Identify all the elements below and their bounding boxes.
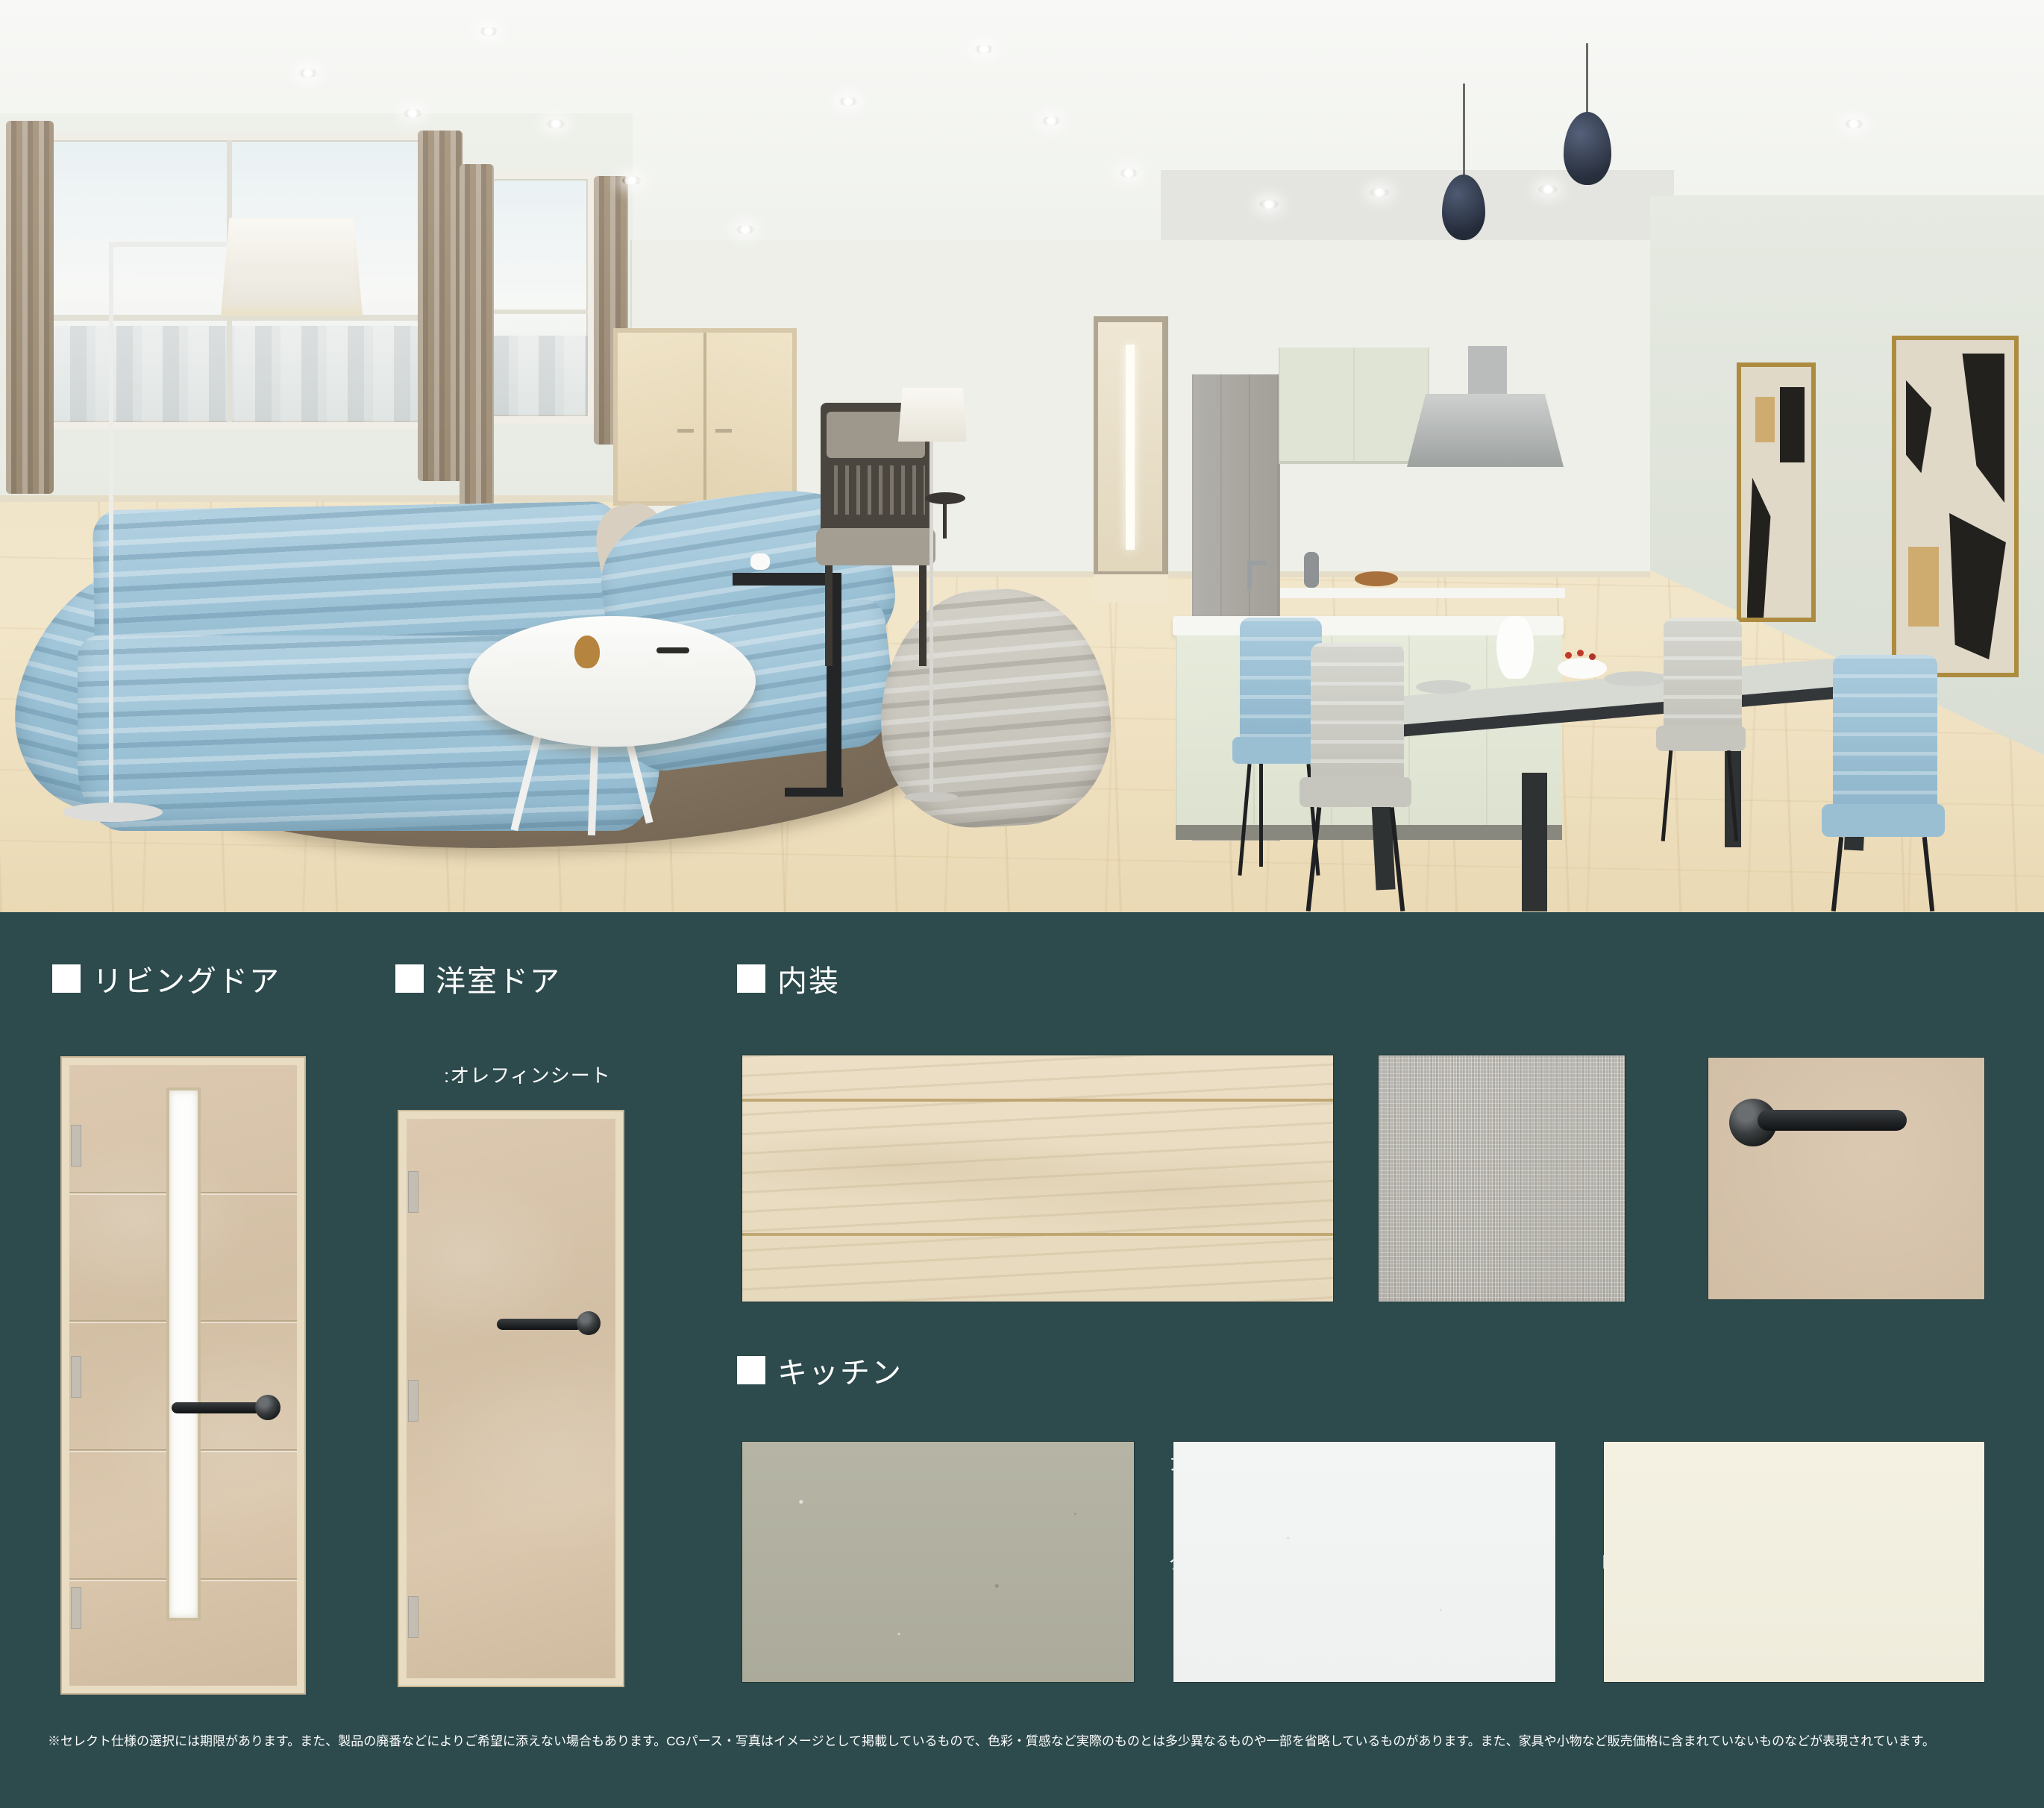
plank-seam: [742, 1099, 1333, 1102]
kitchen-upper-cabinets: [1279, 348, 1429, 464]
door-glass-slit: [166, 1087, 201, 1621]
door-hinge: [408, 1171, 418, 1213]
dining-chair-blue-right: [1822, 655, 1949, 912]
downlight: [1041, 116, 1061, 125]
chair-seat: [1656, 726, 1746, 751]
spec-line: :オレフィンシート: [444, 1059, 611, 1092]
handle-lever: [1758, 1110, 1907, 1131]
dining-chair-gray: [1300, 643, 1419, 912]
door-hinge: [71, 1587, 81, 1629]
downlight: [1119, 169, 1138, 178]
curtain: [6, 121, 54, 494]
downlight: [1370, 188, 1389, 197]
chair-leg: [1831, 837, 1843, 911]
closet-leaf-right: [706, 333, 792, 501]
chair-back: [1833, 655, 1937, 808]
art-shape: [1949, 513, 2006, 659]
closet-leaf-left: [618, 333, 703, 501]
door-lever-handle: [172, 1402, 261, 1413]
side-table-base: [785, 788, 843, 797]
wall-art-left: [1737, 362, 1816, 622]
arc-lamp-shade: [221, 218, 363, 316]
chair-leg: [1922, 837, 1934, 911]
chair-leg: [1259, 764, 1263, 867]
cup: [750, 553, 770, 570]
art-shape: [1908, 547, 1939, 627]
disclaimer-text: ※セレクト仕様の選択には期限があります。また、製品の廃番などによりご希望に添えな…: [48, 1730, 2002, 1749]
berries: [1565, 652, 1572, 659]
countertop-swatch: [1173, 1442, 1555, 1682]
baseboard-left: [0, 495, 633, 502]
art-shape: [1780, 387, 1805, 462]
city-view: [492, 336, 588, 416]
counter-vase: [1304, 552, 1319, 588]
decor-gold-kettle: [574, 635, 600, 668]
flooring-swatch: [742, 1055, 1333, 1302]
living-door-image: [62, 1058, 304, 1693]
downlight: [838, 97, 858, 106]
kitchen-back-counter: [1280, 588, 1565, 598]
art-shape: [1906, 380, 1932, 474]
chair-back: [1664, 618, 1742, 729]
door-lever-handle: [497, 1319, 583, 1330]
window-left-small: [485, 172, 595, 424]
chair-leg: [1238, 764, 1251, 876]
chair-leg: [1727, 750, 1739, 841]
downlight: [1844, 119, 1863, 128]
curtain: [418, 131, 463, 481]
chair-seat: [1300, 777, 1411, 807]
faucet-spout: [1247, 561, 1267, 565]
chair-leg: [1661, 750, 1673, 841]
closet-handle: [677, 429, 694, 433]
door-handle-rose: [255, 1395, 280, 1420]
hallway-door-glass-slit: [1126, 345, 1135, 550]
armchair-seat-cushion: [816, 528, 935, 565]
arc-lamp-base: [63, 803, 163, 822]
square-bullet-icon: [52, 964, 81, 993]
chair-leg: [1306, 807, 1322, 911]
downlight: [403, 109, 422, 118]
art-shape: [1957, 354, 2004, 503]
range-hood: [1407, 394, 1564, 467]
downlight: [546, 119, 565, 128]
door-handle-swatch: [1708, 1058, 1984, 1299]
armchair-leg: [919, 565, 927, 666]
dining-chair-gray-right: [1656, 618, 1753, 841]
window-rail: [492, 310, 588, 314]
closet-gap: [703, 333, 707, 501]
kitchen-panel-swatch: [1604, 1442, 1984, 1682]
door-hinge: [408, 1380, 418, 1422]
downlight: [479, 27, 498, 36]
square-bullet-icon: [395, 964, 424, 993]
round-side-table-leg: [943, 503, 947, 539]
plate: [1416, 680, 1471, 694]
chair-back: [1311, 643, 1404, 781]
downlight: [974, 45, 994, 54]
decor-glasses: [656, 647, 689, 653]
hallway-recess: [1094, 316, 1168, 577]
ldk-interior-render: [0, 0, 2044, 912]
dining-table-leg: [1522, 773, 1547, 911]
closet-double-doors: [613, 328, 797, 506]
closet-handle: [715, 429, 732, 433]
door-hinge: [71, 1356, 81, 1398]
art-shape: [1755, 397, 1775, 442]
coffee-table: [468, 616, 756, 747]
downlight: [1259, 200, 1279, 209]
white-jug: [1496, 616, 1534, 679]
door-hinge: [71, 1125, 81, 1167]
kitchen-door-swatch: [742, 1442, 1134, 1682]
arc-lamp-pole: [109, 243, 113, 812]
plank-seam: [742, 1233, 1333, 1236]
fruit-bowl: [1558, 658, 1607, 679]
downlight: [622, 176, 642, 185]
downlight: [298, 69, 318, 78]
pendant-cord: [1463, 84, 1465, 178]
door-handle-rose: [577, 1311, 601, 1335]
wall-art-right: [1892, 336, 2019, 677]
chair-leg: [1390, 807, 1405, 911]
accent-cloth-swatch: [1379, 1055, 1625, 1302]
downlight: [736, 225, 755, 234]
wooden-bowl: [1355, 571, 1398, 586]
pendant-cord: [1586, 43, 1588, 115]
door-hinge: [408, 1596, 418, 1638]
wood-armchair: [816, 403, 935, 675]
chair-seat: [1822, 804, 1945, 837]
armchair-slats: [827, 465, 925, 515]
floor-lamp-shade: [898, 388, 967, 442]
square-bullet-icon: [737, 1356, 765, 1384]
square-bullet-icon: [737, 964, 765, 993]
floor-lamp-base: [904, 792, 958, 802]
range-hood-chimney: [1468, 346, 1507, 395]
downlight: [1538, 185, 1558, 194]
hallway-door: [1098, 322, 1162, 571]
armchair-leg: [825, 565, 833, 666]
bedroom-door-image: [399, 1111, 623, 1686]
hallway-floor: [1094, 574, 1168, 603]
art-shape: [1747, 462, 1775, 618]
